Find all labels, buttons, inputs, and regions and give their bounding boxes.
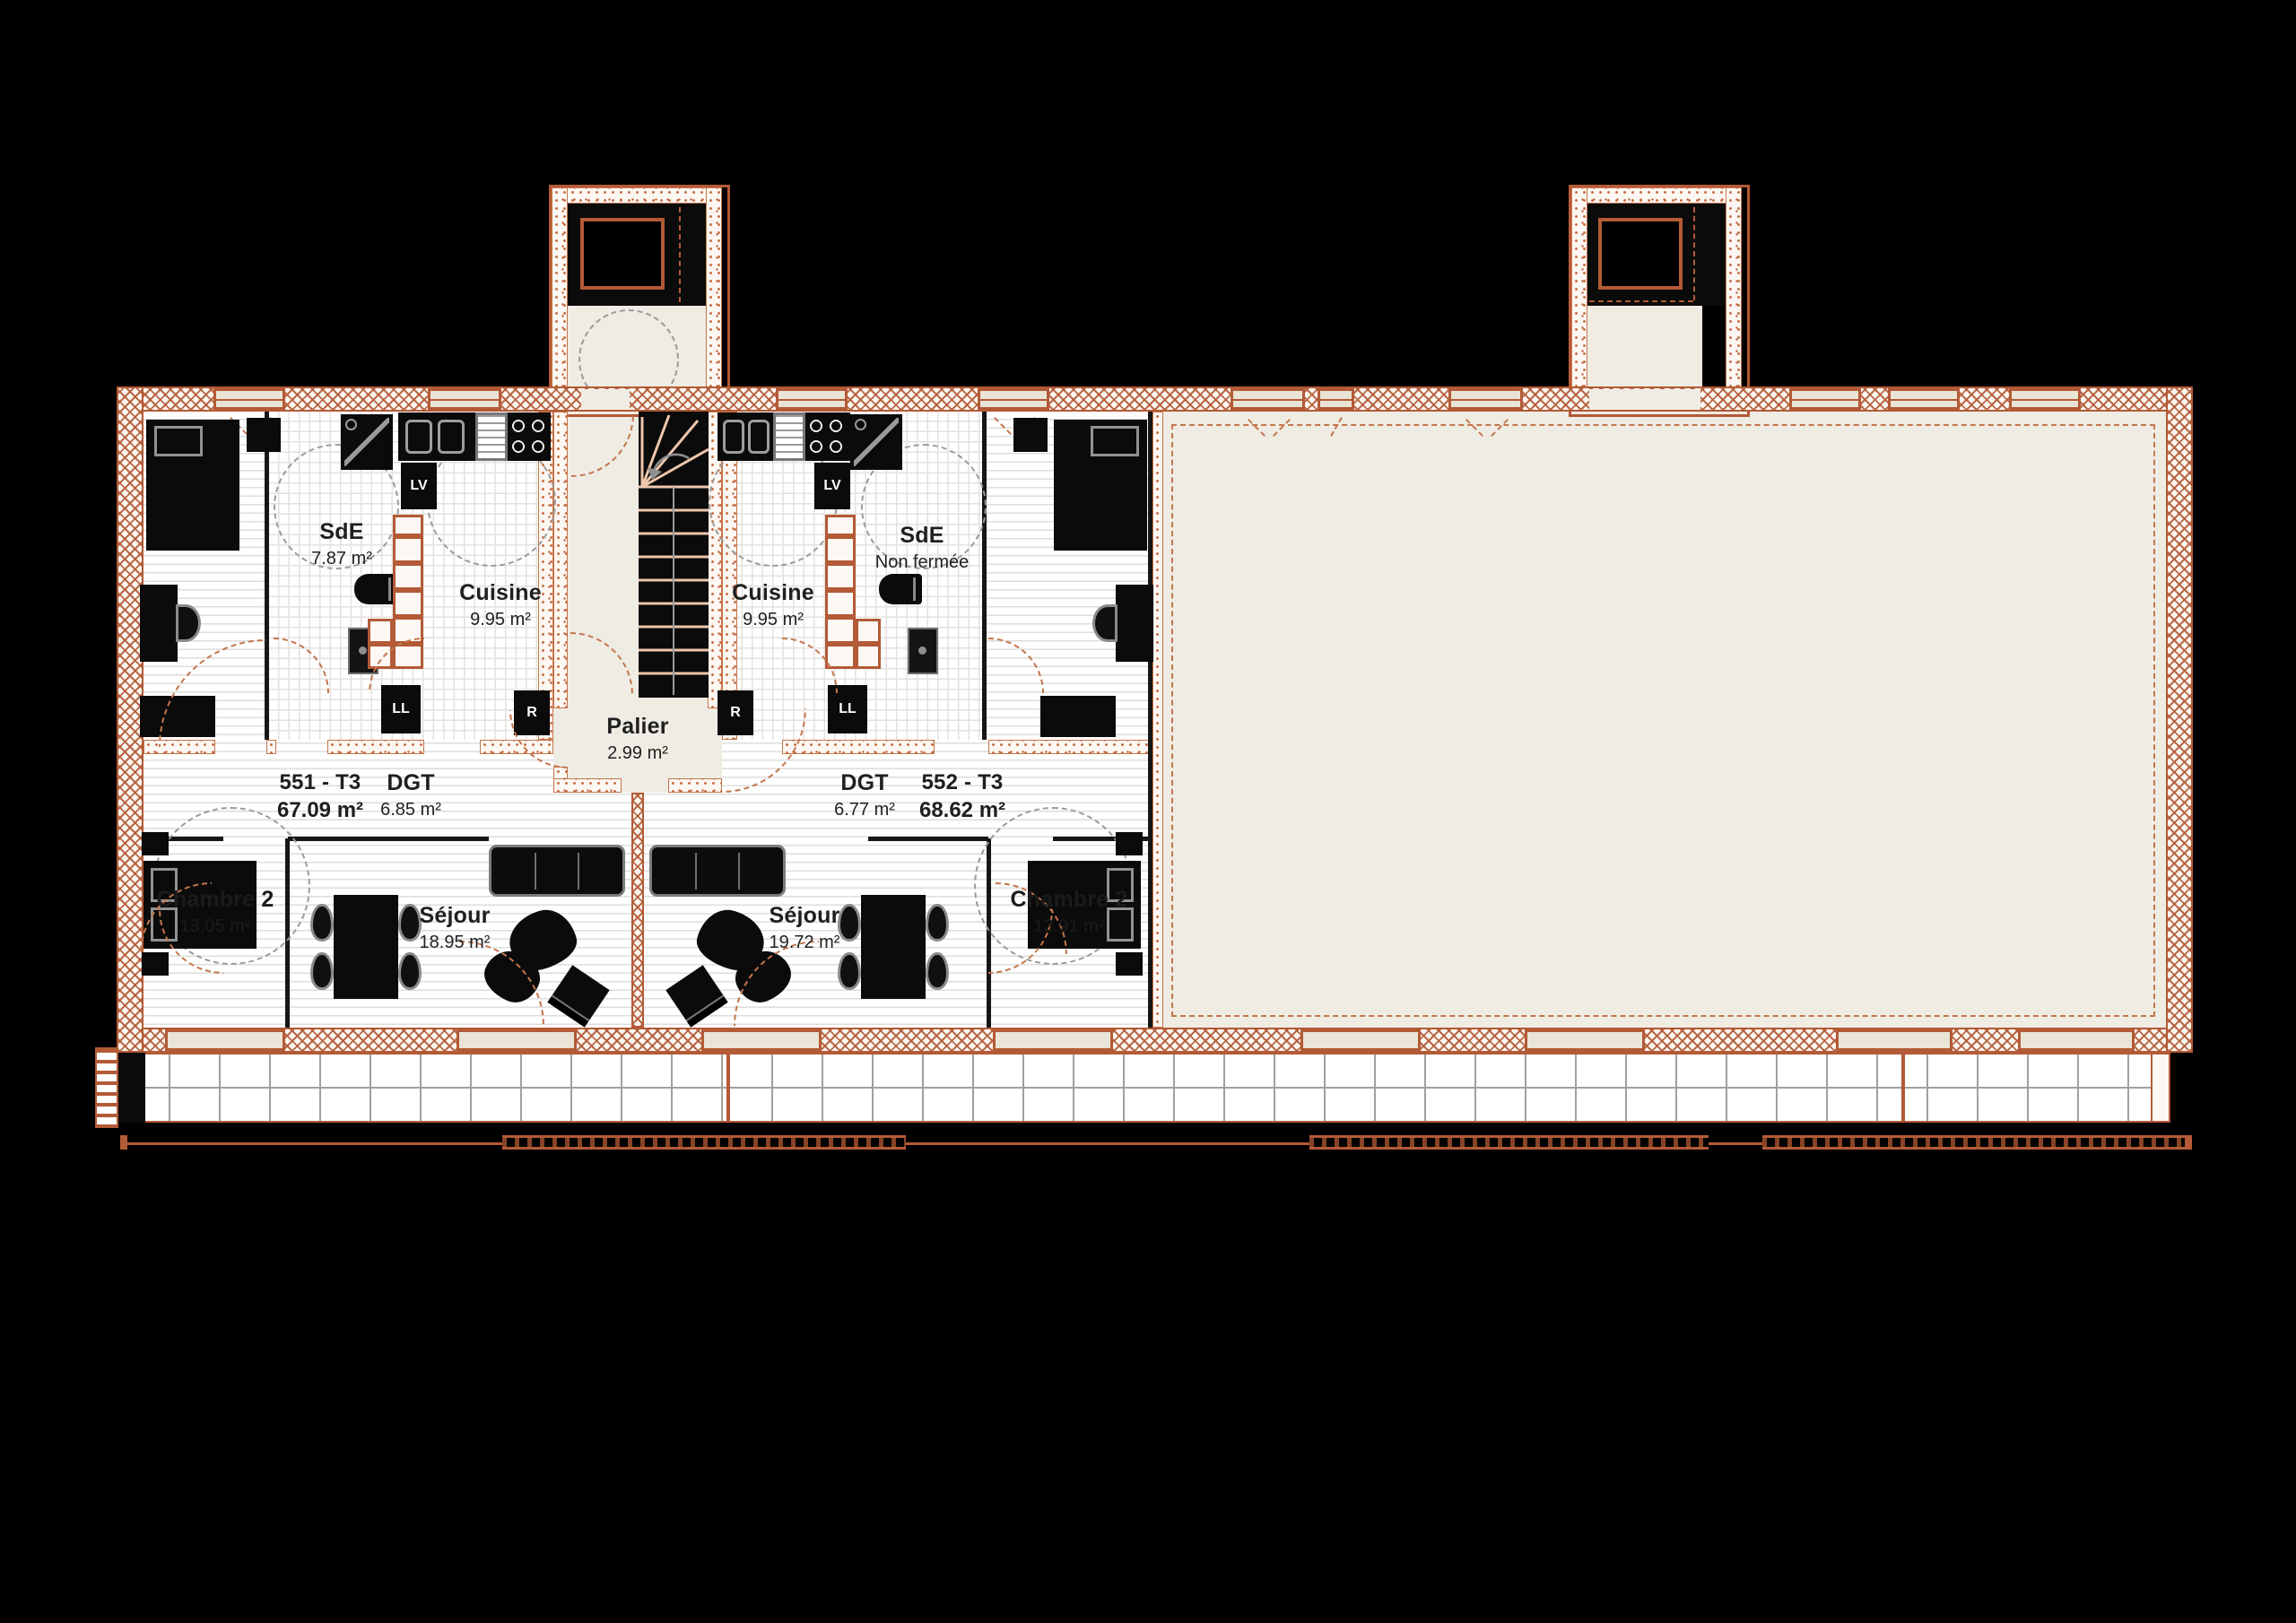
room-area: 13.05 m² [156, 916, 274, 937]
room-label-palier: Palier 2.99 m² [606, 713, 668, 764]
plumbing-cell [393, 590, 423, 617]
counter-drainer [773, 412, 805, 461]
railing-ticked [502, 1135, 906, 1150]
dishwasher-label: LV [823, 478, 840, 494]
room-name: Séjour [420, 902, 491, 930]
room-area: 12.91 m² [1010, 916, 1127, 937]
room-label-dgt-552: DGT 6.77 m² [834, 769, 895, 820]
exterior-wall-right [2166, 386, 2193, 1053]
room-name: Chambre 2 [1010, 886, 1127, 914]
railing [906, 1142, 1309, 1145]
dining-chair [926, 952, 949, 990]
room-name: DGT [380, 769, 441, 797]
balcony-divider [1901, 1055, 1905, 1121]
sink-basin [438, 420, 465, 454]
wall-552-openarea-band [1152, 412, 1163, 1028]
room-name: Chambre 2 [156, 886, 274, 914]
dining-chair [838, 952, 861, 990]
left-elevator-cab [580, 218, 665, 290]
window [1836, 1029, 1952, 1051]
room-area: 9.95 m² [459, 609, 542, 630]
room-label-sejour-552: Séjour 19.72 m² [770, 902, 840, 953]
railing-cap [120, 1135, 127, 1150]
railing [126, 1142, 502, 1145]
room-name: SdE [875, 522, 970, 550]
cooktop [805, 412, 850, 461]
left-tower-wall-top [552, 187, 722, 204]
right-shaft-dashed-line-v [1693, 207, 1695, 300]
unit-area: 67.09 m² [277, 797, 363, 823]
nightstand [142, 952, 169, 976]
dining-chair [310, 904, 334, 942]
room-name: Cuisine [459, 579, 542, 607]
window [1888, 388, 1960, 410]
nightstand [1116, 952, 1143, 976]
party-wall [631, 793, 644, 1028]
palier-wall-west [553, 412, 568, 708]
nightstand [142, 832, 169, 855]
railing [1709, 1142, 1762, 1145]
room-name: Palier [606, 713, 668, 741]
balcony-tiles [118, 1053, 2152, 1123]
plumbing-cell [856, 619, 881, 644]
unit-label-551: 551 - T3 67.09 m² [277, 769, 363, 824]
unit-id: 551 - T3 [277, 769, 363, 795]
unit-label-552: 552 - T3 68.62 m² [919, 769, 1005, 824]
wardrobe [1040, 696, 1116, 737]
left-tower-door-opening [581, 389, 630, 410]
room-area: 6.77 m² [834, 799, 895, 820]
room-area: 19.72 m² [770, 932, 840, 953]
window [1448, 388, 1523, 410]
balcony-divider [726, 1055, 730, 1121]
room-label-chambre2-552: Chambre 2 12.91 m² [1010, 886, 1127, 937]
plumbing-cell [393, 563, 423, 590]
room-label-sde-551: SdE 7.87 m² [311, 518, 372, 569]
window [2009, 388, 2081, 410]
door-post [266, 740, 276, 754]
window [1525, 1029, 1645, 1051]
railing-ticked [1762, 1135, 2188, 1150]
staircase [639, 412, 709, 698]
room-label-sde-552: SdE Non fermée [875, 522, 970, 573]
toilet [354, 574, 397, 604]
dining-chair [926, 904, 949, 942]
floor-plan: LL LV R LV R LL [0, 0, 2296, 1623]
balcony-end-block [118, 1053, 145, 1123]
unit-id: 552 - T3 [919, 769, 1005, 795]
desk [1116, 585, 1153, 662]
room-name: Séjour [770, 902, 840, 930]
toilet [879, 574, 922, 604]
room-label-cuisine-551: Cuisine 9.95 m² [459, 579, 542, 630]
plumbing-cell [825, 515, 856, 536]
room-name: Cuisine [732, 579, 814, 607]
plumbing-cell [393, 536, 423, 563]
room-name: DGT [834, 769, 895, 797]
right-tower-wall-east [1726, 187, 1742, 412]
window [2018, 1029, 2135, 1051]
room-band-wall [327, 740, 424, 754]
right-shaft-dashed-line-h [1589, 300, 1693, 302]
dining-chair [398, 904, 422, 942]
room-label-chambre2-551: Chambre 2 13.05 m² [156, 886, 274, 937]
right-elevator-cab [1598, 218, 1683, 290]
cooktop [508, 412, 551, 461]
room-area: 6.85 m² [380, 799, 441, 820]
window [1300, 1029, 1421, 1051]
window [165, 1029, 285, 1051]
railing-ticked [1309, 1135, 1709, 1150]
plumbing-cell [368, 619, 393, 644]
room-band-wall [988, 740, 1150, 754]
window [978, 388, 1049, 410]
washer-label: LL [392, 701, 410, 717]
dining-table [861, 895, 926, 999]
window [428, 388, 501, 410]
sink-basin [405, 420, 432, 454]
open-area-dashed-outline [1171, 424, 2155, 1017]
unit-area: 68.62 m² [919, 797, 1005, 823]
room-area: 18.95 m² [420, 932, 491, 953]
plumbing-cell [825, 617, 856, 644]
counter-drainer [475, 412, 508, 461]
washer-label: LL [839, 701, 857, 717]
room-area: 2.99 m² [606, 742, 668, 764]
dishwasher-label: LV [410, 478, 427, 494]
right-tower-wall-top [1571, 187, 1742, 204]
sofa [649, 845, 786, 897]
dishwasher-box: LV [401, 463, 437, 509]
room-area: 7.87 m² [311, 548, 372, 569]
window [776, 388, 848, 410]
window [993, 1029, 1113, 1051]
window [701, 1029, 822, 1051]
wall-sejour-top-551 [288, 837, 489, 841]
sink-basin [723, 420, 744, 454]
shower [341, 414, 393, 470]
left-tower-wall-east [706, 187, 722, 412]
right-tower-opening [1589, 389, 1700, 410]
plumbing-cell [825, 590, 856, 617]
window [457, 1029, 577, 1051]
dining-chair [310, 952, 334, 990]
shower [850, 414, 902, 470]
room-label-cuisine-552: Cuisine 9.95 m² [732, 579, 814, 630]
dining-table [334, 895, 398, 999]
room-note: Non fermée [875, 551, 970, 573]
railing-cap [2185, 1135, 2192, 1150]
left-tower-wall-west [552, 187, 568, 412]
nightstand [1013, 418, 1048, 452]
palier-wall-south-b [668, 778, 722, 793]
window [213, 388, 285, 410]
desk-chair [1092, 604, 1118, 642]
partition-sde-chambre-552 [982, 412, 987, 740]
bed-pillow [154, 426, 203, 456]
room-name: SdE [311, 518, 372, 546]
room-label-dgt-551: DGT 6.85 m² [380, 769, 441, 820]
plumbing-cell [825, 563, 856, 590]
dishwasher-box: LV [814, 463, 850, 509]
palier-wall-south-a [553, 778, 622, 793]
vanity-sink [908, 628, 938, 674]
dining-chair [838, 904, 861, 942]
wall-sejour-top-552 [868, 837, 988, 841]
sink-basin [748, 420, 770, 454]
plumbing-cell [393, 515, 423, 536]
nightstand [1116, 832, 1143, 855]
bed-pillow [1091, 426, 1139, 456]
balcony-post-right [2151, 1053, 2170, 1123]
window [1231, 388, 1305, 410]
sofa [489, 845, 625, 897]
room-area: 9.95 m² [732, 609, 814, 630]
room-label-sejour-551: Séjour 18.95 m² [420, 902, 491, 953]
balcony-post-left [95, 1047, 118, 1128]
dining-chair [398, 952, 422, 990]
right-tower-wall-west [1571, 187, 1587, 412]
desk [140, 585, 178, 662]
plumbing-cell [856, 644, 881, 669]
room-band-wall [782, 740, 935, 754]
plumbing-cell [825, 536, 856, 563]
left-shaft-dashed-line [679, 207, 681, 302]
nightstand [247, 418, 281, 452]
window [1789, 388, 1861, 410]
window [1318, 388, 1354, 410]
